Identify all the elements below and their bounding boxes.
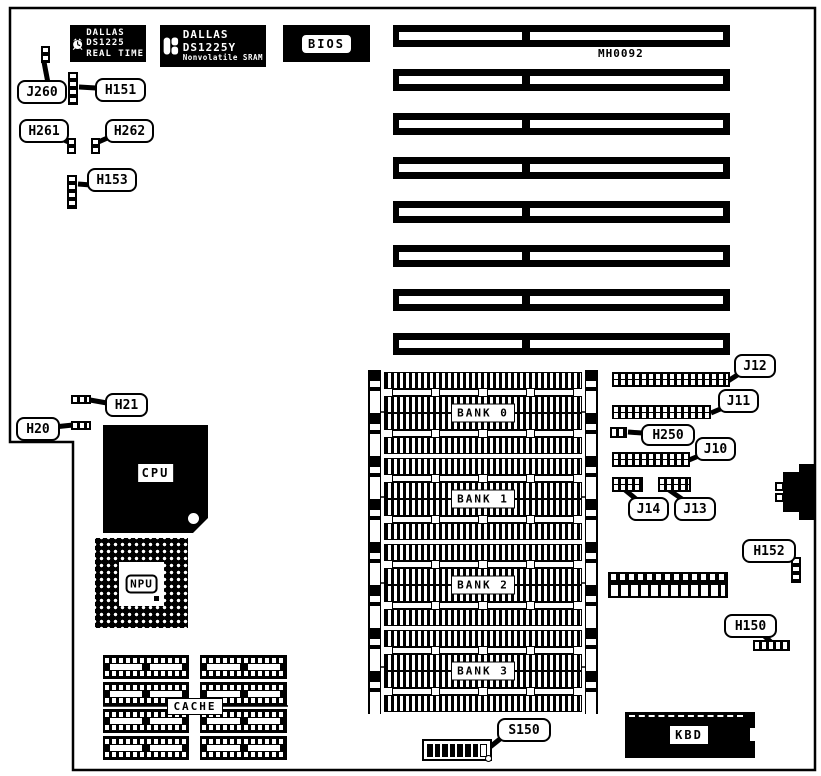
callout-h150: H150 xyxy=(724,614,777,638)
isa-slot-4 xyxy=(393,157,730,179)
h153-header xyxy=(67,175,77,209)
j14-header xyxy=(612,477,643,492)
j260-jumper xyxy=(41,46,50,63)
cache-chip xyxy=(200,655,287,679)
callout-j10: J10 xyxy=(695,437,736,461)
cache-chip xyxy=(103,655,189,679)
bank0-label: BANK 0 xyxy=(451,404,515,423)
callout-j11: J11 xyxy=(718,389,759,413)
isa-slot-6 xyxy=(393,245,730,267)
kbd-notch xyxy=(750,728,755,741)
s150-dip-switch xyxy=(422,739,492,761)
memory-bank-1: BANK 1 xyxy=(384,458,582,540)
memory-bank-0: BANK 0 xyxy=(384,372,582,454)
h261-jumper xyxy=(67,138,76,154)
h262-jumper xyxy=(91,138,100,154)
nvram-brand: DALLAS xyxy=(183,29,263,42)
npu-pin1-mark xyxy=(154,596,159,601)
j11-header xyxy=(612,405,711,419)
callout-h262: H262 xyxy=(105,119,154,143)
callout-h21: H21 xyxy=(105,393,148,417)
callout-j260: J260 xyxy=(17,80,67,104)
memory-socket-area: BANK 0 BANK 1 BANK 2 BANK 3 xyxy=(368,370,598,712)
h151-header xyxy=(68,72,78,105)
nvram-chip: DALLAS DS1225Y Nonvolatile SRAM xyxy=(160,25,266,67)
clock-icon xyxy=(72,33,83,55)
npu-socket-center: NPU xyxy=(119,562,164,606)
cpu-pin1-dot xyxy=(188,513,199,524)
cpu-label: CPU xyxy=(138,464,174,482)
isa-slot-8 xyxy=(393,333,730,355)
callout-j14: J14 xyxy=(628,497,669,521)
h20-jumper xyxy=(71,421,91,430)
callout-h20: H20 xyxy=(16,417,60,441)
callout-s150: S150 xyxy=(497,718,551,742)
j13-header xyxy=(658,477,691,492)
isa-slot-5 xyxy=(393,201,730,223)
memory-bank-3: BANK 3 xyxy=(384,630,582,712)
cache-chip xyxy=(200,736,287,760)
s150-pin1-mark xyxy=(485,755,492,762)
power-connector xyxy=(608,572,728,598)
callout-h151: H151 xyxy=(95,78,146,102)
memory-bank-2: BANK 2 xyxy=(384,544,582,626)
din-connector-bulge xyxy=(783,472,800,512)
h250-header xyxy=(610,427,627,438)
j10-header xyxy=(612,452,690,467)
bank1-label: BANK 1 xyxy=(451,490,515,509)
din-connector-body xyxy=(799,464,815,520)
rtc-part: DS1225 xyxy=(86,38,144,48)
h21-jumper xyxy=(71,395,91,404)
motherboard-diagram: DALLAS DS1225 REAL TIME DALLAS DS1225Y N… xyxy=(0,0,821,776)
callout-h250: H250 xyxy=(641,424,695,446)
isa-slot-7 xyxy=(393,289,730,311)
cache-label: CACHE xyxy=(167,698,223,715)
simm-rail-left xyxy=(368,370,381,714)
simm-rail-right xyxy=(585,370,598,714)
callout-j12: J12 xyxy=(734,354,776,378)
callout-j13: J13 xyxy=(674,497,716,521)
din-pin-2 xyxy=(775,493,784,502)
kbd-label: KBD xyxy=(669,725,709,745)
bios-chip: BIOS xyxy=(283,25,370,62)
bank2-label: BANK 2 xyxy=(451,576,515,595)
nvram-subtitle: Nonvolatile SRAM xyxy=(183,54,263,63)
bank3-label: BANK 3 xyxy=(451,662,515,681)
npu-socket: NPU xyxy=(95,538,188,628)
cpu-chip: CPU xyxy=(103,425,208,533)
npu-label: NPU xyxy=(125,575,158,594)
j12-header xyxy=(612,372,730,387)
din-pin-1 xyxy=(775,482,784,491)
bios-label: BIOS xyxy=(301,34,352,54)
isa-slot-2 xyxy=(393,69,730,91)
rtc-chip: DALLAS DS1225 REAL TIME xyxy=(70,25,146,62)
kbd-controller: KBD xyxy=(625,712,755,758)
cache-chip xyxy=(103,736,189,760)
callout-h152: H152 xyxy=(742,539,796,563)
h150-header xyxy=(753,640,790,651)
isa-slot-1 xyxy=(393,25,730,47)
rtc-brand: DALLAS xyxy=(86,28,144,38)
callout-h153: H153 xyxy=(87,168,137,192)
rtc-subtitle: REAL TIME xyxy=(86,49,144,59)
callout-h261: H261 xyxy=(19,119,69,143)
board-part-number: MH0092 xyxy=(598,47,668,60)
isa-slot-3 xyxy=(393,113,730,135)
dallas-logo-icon xyxy=(163,31,179,61)
